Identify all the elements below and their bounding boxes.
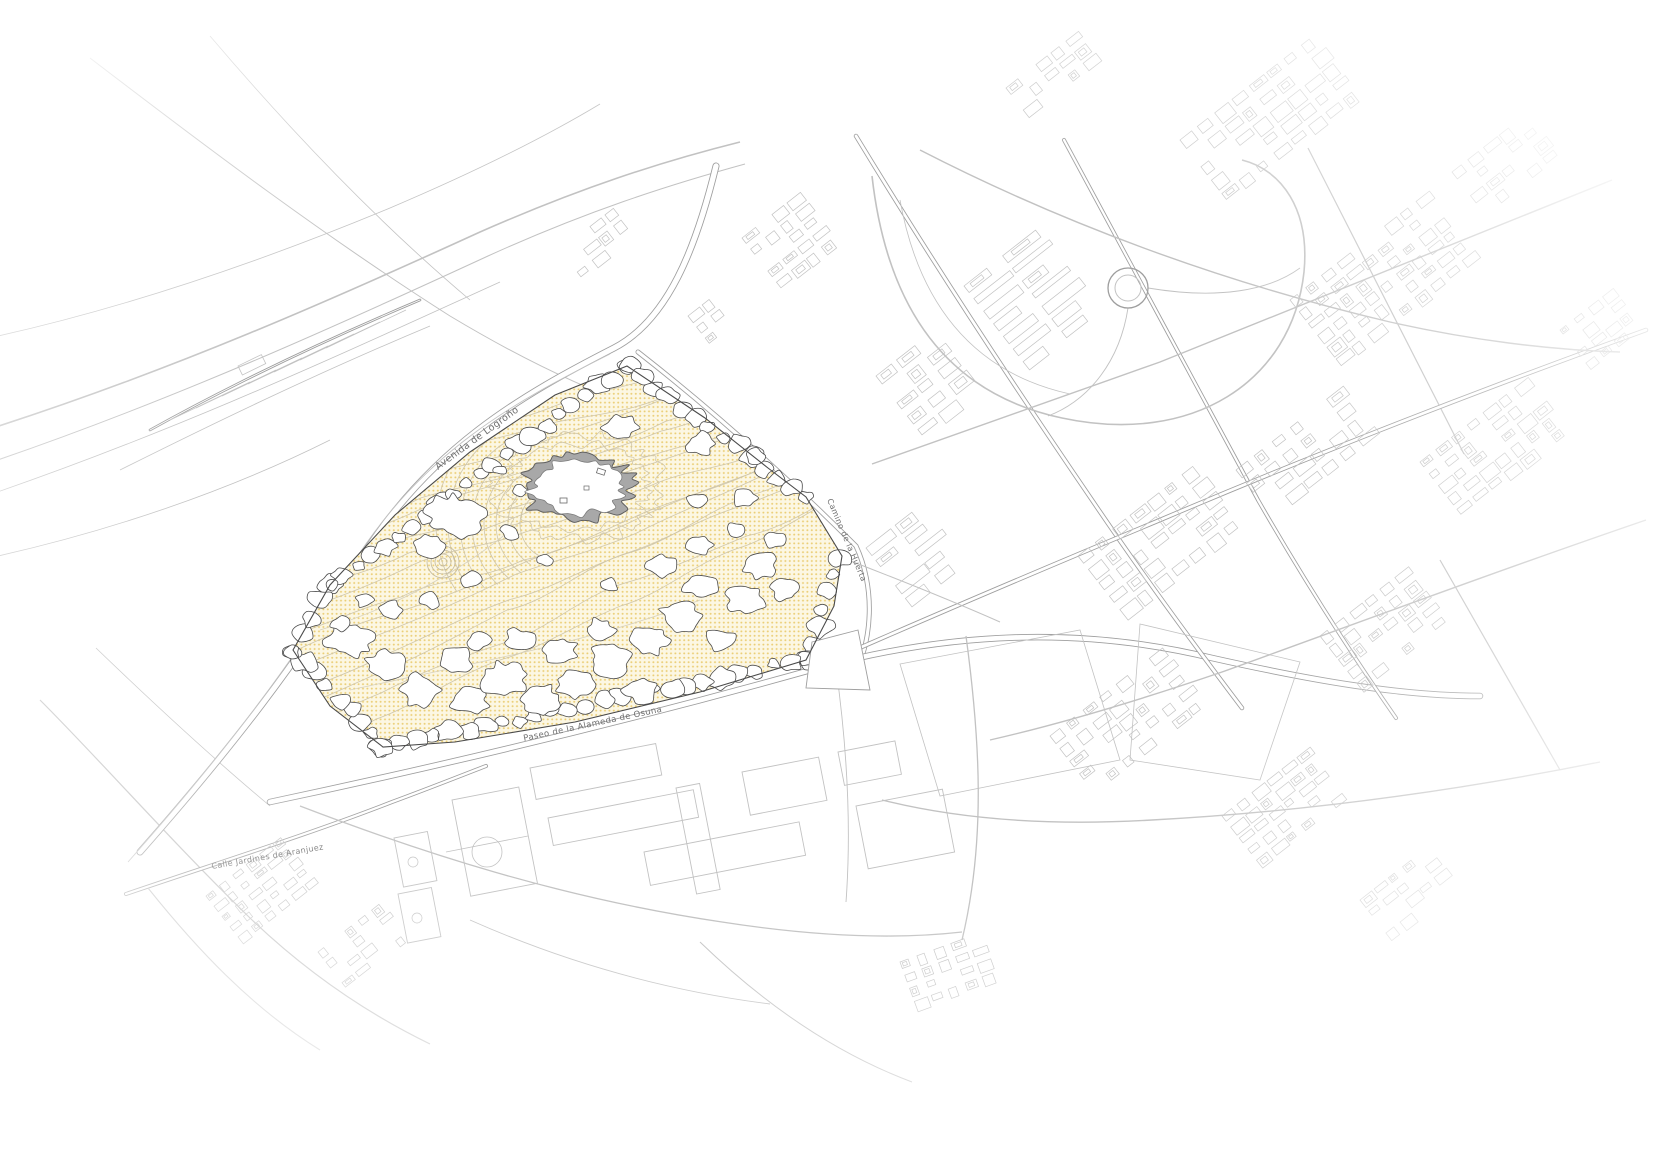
site-plan-map: Avenida de Logroño Camino de la Huerta P… [0, 0, 1656, 1169]
site-plan-page: Avenida de Logroño Camino de la Huerta P… [0, 0, 1656, 1169]
